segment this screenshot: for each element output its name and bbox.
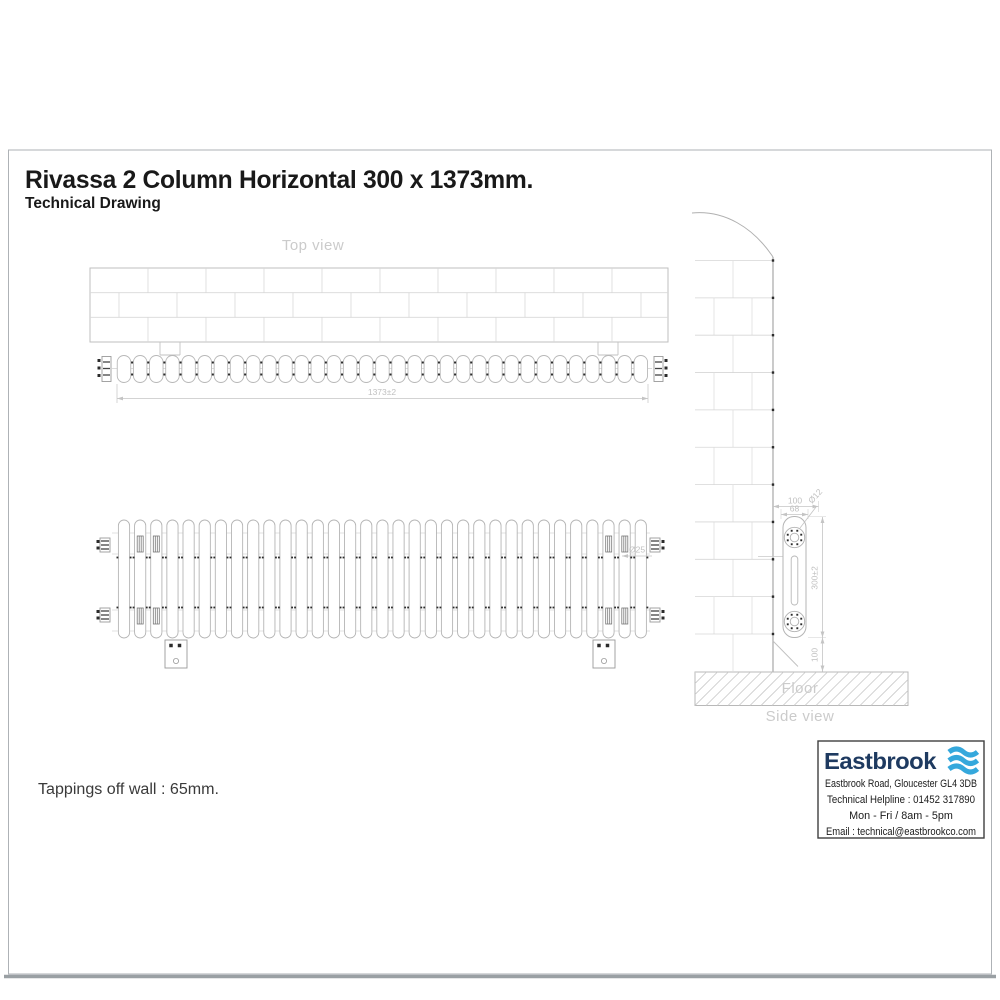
hatch-line bbox=[717, 672, 751, 706]
weld-dot bbox=[503, 374, 505, 376]
radiator-column bbox=[312, 520, 323, 638]
weld-dot bbox=[227, 557, 229, 559]
weld-dot bbox=[632, 362, 634, 364]
section-oval bbox=[569, 356, 583, 383]
weld-dot bbox=[582, 557, 584, 559]
weld-dot bbox=[162, 557, 164, 559]
weld-dot bbox=[373, 374, 375, 376]
weld-dot bbox=[324, 557, 326, 559]
weld-dot bbox=[469, 607, 471, 609]
weld-dot bbox=[163, 362, 165, 364]
weld-dot bbox=[310, 557, 312, 559]
weld-dot bbox=[504, 607, 506, 609]
weld-dot bbox=[582, 607, 584, 609]
weld-dot bbox=[566, 607, 568, 609]
weld-dot bbox=[197, 557, 199, 559]
weld-dot bbox=[488, 607, 490, 609]
flange-bolt-dot bbox=[800, 618, 802, 620]
weld-dot bbox=[180, 374, 182, 376]
weld-dot bbox=[181, 557, 183, 559]
weld-dot bbox=[228, 374, 230, 376]
weld-dot bbox=[147, 362, 149, 364]
radiator-column bbox=[587, 520, 598, 638]
weld-dot bbox=[599, 362, 601, 364]
section-oval bbox=[489, 356, 503, 383]
weld-dot bbox=[276, 374, 278, 376]
section-oval bbox=[537, 356, 551, 383]
flange-bolt-dot bbox=[800, 539, 802, 541]
weld-dot bbox=[275, 607, 277, 609]
weld-dot bbox=[340, 557, 342, 559]
radiator-column bbox=[328, 520, 339, 638]
end-dot bbox=[662, 540, 665, 543]
section-oval bbox=[553, 356, 567, 383]
valve-mark bbox=[622, 608, 628, 624]
hatch-line bbox=[695, 672, 729, 706]
weld-dot bbox=[194, 607, 196, 609]
radiator-column bbox=[571, 520, 582, 638]
weld-dot bbox=[210, 607, 212, 609]
weld-dot bbox=[133, 607, 135, 609]
section-oval bbox=[150, 356, 164, 383]
weld-dot bbox=[517, 557, 519, 559]
weld-dot bbox=[585, 607, 587, 609]
section-oval bbox=[182, 356, 196, 383]
weld-dot bbox=[294, 607, 296, 609]
weld-dot bbox=[485, 607, 487, 609]
weld-dot bbox=[550, 557, 552, 559]
section-oval bbox=[230, 356, 244, 383]
front-view-geometry bbox=[97, 520, 665, 668]
weld-dot bbox=[180, 362, 182, 364]
radiator-column bbox=[167, 520, 178, 638]
weld-dot bbox=[356, 557, 358, 559]
end-dot bbox=[97, 610, 100, 613]
radiator-column bbox=[361, 520, 372, 638]
weld-dot bbox=[262, 557, 264, 559]
dim-arrow bbox=[117, 397, 123, 401]
weld-dot bbox=[181, 607, 183, 609]
weld-dot bbox=[359, 557, 361, 559]
weld-dot bbox=[616, 374, 618, 376]
weld-dot bbox=[454, 374, 456, 376]
weld-dot bbox=[601, 607, 603, 609]
weld-dot bbox=[196, 362, 198, 364]
top-view-geometry bbox=[90, 268, 668, 403]
radiator-column bbox=[264, 520, 275, 638]
radiator-column bbox=[474, 520, 485, 638]
bracket-bolt bbox=[597, 644, 601, 648]
flange-bolt-dot bbox=[791, 543, 793, 545]
weld-dot bbox=[533, 557, 535, 559]
weld-dot bbox=[291, 607, 293, 609]
radiator-column bbox=[296, 520, 307, 638]
flange-bolt-dot bbox=[796, 530, 798, 532]
weld-dot bbox=[633, 607, 635, 609]
end-dot bbox=[662, 610, 665, 613]
weld-dot bbox=[550, 607, 552, 609]
weld-dot bbox=[341, 362, 343, 364]
wall-top-arc bbox=[692, 213, 773, 257]
weld-dot bbox=[470, 374, 472, 376]
weld-dot bbox=[275, 557, 277, 559]
weld-dot bbox=[246, 607, 248, 609]
wall-fixing-dot bbox=[772, 259, 774, 261]
end-dot bbox=[665, 374, 668, 377]
hatch-line bbox=[882, 672, 916, 706]
weld-dot bbox=[536, 607, 538, 609]
weld-dot bbox=[566, 557, 568, 559]
end-dot bbox=[97, 547, 100, 550]
weld-dot bbox=[456, 607, 458, 609]
page-title: Rivassa 2 Column Horizontal 300 x 1373mm… bbox=[25, 166, 533, 194]
weld-dot bbox=[453, 557, 455, 559]
wall-fixing-dot bbox=[772, 297, 774, 299]
end-dot bbox=[98, 367, 101, 370]
hatch-line bbox=[871, 672, 905, 706]
bracket-bolt bbox=[169, 644, 173, 648]
weld-dot bbox=[373, 362, 375, 364]
weld-dot bbox=[617, 607, 619, 609]
wall-fixing-dot bbox=[772, 558, 774, 560]
section-oval bbox=[634, 356, 648, 383]
radiator-column bbox=[183, 520, 194, 638]
tapping-flange bbox=[784, 611, 804, 631]
weld-dot bbox=[601, 557, 603, 559]
brand-helpline: Technical Helpline : 01452 317890 bbox=[827, 794, 975, 806]
hole-diameter-label: Ø12 bbox=[806, 487, 824, 506]
brand-box: Eastbrook Eastbrook Road, Gloucester GL4… bbox=[818, 741, 984, 838]
weld-dot bbox=[262, 607, 264, 609]
weld-dot bbox=[130, 557, 132, 559]
weld-dot bbox=[293, 362, 295, 364]
weld-dot bbox=[130, 607, 132, 609]
weld-dot bbox=[488, 557, 490, 559]
radiator-column bbox=[441, 520, 452, 638]
radiator-column bbox=[490, 520, 501, 638]
flange-bolt-dot bbox=[787, 618, 789, 620]
weld-dot bbox=[194, 557, 196, 559]
weld-dot bbox=[375, 607, 377, 609]
valve-mark bbox=[137, 536, 143, 552]
weld-dot bbox=[196, 374, 198, 376]
weld-dot bbox=[486, 362, 488, 364]
weld-dot bbox=[440, 607, 442, 609]
weld-dot bbox=[244, 374, 246, 376]
weld-dot bbox=[325, 362, 327, 364]
hatch-line bbox=[893, 672, 927, 706]
weld-dot bbox=[551, 362, 553, 364]
dim-arrow bbox=[773, 505, 779, 509]
hatch-line bbox=[728, 672, 762, 706]
weld-dot bbox=[278, 557, 280, 559]
dim-arrow bbox=[821, 632, 825, 638]
weld-dot bbox=[598, 557, 600, 559]
weld-dot bbox=[438, 362, 440, 364]
weld-dot bbox=[599, 374, 601, 376]
section-oval bbox=[117, 356, 131, 383]
section-oval bbox=[214, 356, 228, 383]
wall-fixing-dot bbox=[772, 595, 774, 597]
radiator-column bbox=[554, 520, 565, 638]
weld-dot bbox=[133, 557, 135, 559]
weld-dot bbox=[293, 374, 295, 376]
weld-dot bbox=[117, 607, 119, 609]
weld-dot bbox=[440, 557, 442, 559]
flange-bolt-dot bbox=[796, 627, 798, 629]
weld-dot bbox=[517, 607, 519, 609]
top-view-label: Top view bbox=[282, 237, 344, 254]
weld-dot bbox=[389, 374, 391, 376]
weld-dot bbox=[453, 607, 455, 609]
radiator-column bbox=[248, 520, 259, 638]
weld-dot bbox=[630, 557, 632, 559]
weld-dot bbox=[230, 607, 232, 609]
weld-dot bbox=[406, 374, 408, 376]
dim-arrow bbox=[781, 513, 787, 517]
weld-dot bbox=[598, 607, 600, 609]
weld-dot bbox=[372, 607, 374, 609]
section-oval bbox=[456, 356, 470, 383]
weld-dot bbox=[340, 607, 342, 609]
weld-dot bbox=[504, 557, 506, 559]
brand-email: Email : technical@eastbrookco.com bbox=[826, 826, 976, 838]
wall-fixing-dot bbox=[772, 483, 774, 485]
bracket-bolt bbox=[178, 644, 182, 648]
side-view-label: Side view bbox=[766, 708, 835, 725]
weld-dot bbox=[246, 557, 248, 559]
radiator-column bbox=[199, 520, 210, 638]
weld-dot bbox=[309, 374, 311, 376]
floor-label: Floor bbox=[782, 680, 819, 697]
weld-dot bbox=[309, 362, 311, 364]
weld-dot bbox=[165, 557, 167, 559]
weld-dot bbox=[149, 557, 151, 559]
valve-mark bbox=[153, 608, 159, 624]
dim-arrow bbox=[821, 638, 825, 644]
weld-dot bbox=[420, 607, 422, 609]
weld-dot bbox=[632, 374, 634, 376]
floor-clearance-dimension-label: 100 bbox=[810, 648, 820, 662]
weld-dot bbox=[407, 557, 409, 559]
weld-dot bbox=[585, 557, 587, 559]
flange-bolt-dot bbox=[796, 543, 798, 545]
weld-dot bbox=[210, 557, 212, 559]
technical-drawing-page: Rivassa 2 Column Horizontal 300 x 1373mm… bbox=[0, 0, 1000, 1000]
weld-dot bbox=[243, 607, 245, 609]
section-oval bbox=[133, 356, 147, 383]
section-oval bbox=[198, 356, 212, 383]
weld-dot bbox=[391, 607, 393, 609]
weld-dot bbox=[212, 362, 214, 364]
weld-dot bbox=[178, 607, 180, 609]
weld-dot bbox=[406, 362, 408, 364]
brand-hours: Mon - Fri / 8am - 5pm bbox=[849, 810, 953, 822]
weld-dot bbox=[326, 557, 328, 559]
weld-dot bbox=[553, 557, 555, 559]
dim-arrow bbox=[642, 397, 648, 401]
weld-dot bbox=[162, 607, 164, 609]
weld-dot bbox=[291, 557, 293, 559]
weld-dot bbox=[404, 557, 406, 559]
weld-dot bbox=[149, 607, 151, 609]
hatch-line bbox=[838, 672, 872, 706]
section-oval bbox=[311, 356, 325, 383]
section-oval bbox=[392, 356, 406, 383]
weld-dot bbox=[520, 607, 522, 609]
bracket-slot bbox=[791, 556, 798, 605]
weld-dot bbox=[420, 557, 422, 559]
section-oval bbox=[440, 356, 454, 383]
weld-dot bbox=[519, 362, 521, 364]
wall-fixing-dot bbox=[772, 633, 774, 635]
section-oval bbox=[360, 356, 374, 383]
brand-name: Eastbrook bbox=[824, 748, 937, 774]
weld-dot bbox=[437, 557, 439, 559]
weld-dot bbox=[341, 374, 343, 376]
flange-bolt-dot bbox=[787, 623, 789, 625]
flange-bolt-dot bbox=[787, 539, 789, 541]
weld-dot bbox=[485, 557, 487, 559]
weld-dot bbox=[357, 362, 359, 364]
radiator-column bbox=[425, 520, 436, 638]
flange-bolt-dot bbox=[800, 623, 802, 625]
length-dimension-label: 1373±2 bbox=[368, 387, 397, 397]
weld-dot bbox=[422, 362, 424, 364]
radiator-column bbox=[377, 520, 388, 638]
hatch-line bbox=[827, 672, 861, 706]
valve-mark bbox=[622, 536, 628, 552]
weld-dot bbox=[146, 607, 148, 609]
section-oval bbox=[602, 356, 616, 383]
weld-dot bbox=[422, 374, 424, 376]
weld-dot bbox=[147, 374, 149, 376]
page-subtitle: Technical Drawing bbox=[25, 195, 161, 212]
weld-dot bbox=[567, 362, 569, 364]
weld-dot bbox=[260, 362, 262, 364]
height-dimension-label: 300±2 bbox=[810, 566, 820, 590]
weld-dot bbox=[551, 374, 553, 376]
flange-bolt-dot bbox=[796, 614, 798, 616]
weld-dot bbox=[567, 374, 569, 376]
radiator-column bbox=[393, 520, 404, 638]
weld-dot bbox=[260, 374, 262, 376]
valve-mark bbox=[137, 608, 143, 624]
end-dot bbox=[97, 617, 100, 620]
side-view-geometry bbox=[662, 213, 938, 706]
weld-dot bbox=[423, 557, 425, 559]
end-dot bbox=[98, 374, 101, 377]
end-dot bbox=[662, 617, 665, 620]
weld-dot bbox=[535, 362, 537, 364]
weld-dot bbox=[614, 607, 616, 609]
hatch-line bbox=[849, 672, 883, 706]
end-dot bbox=[665, 367, 668, 370]
radiator-column bbox=[280, 520, 291, 638]
valve-mark bbox=[606, 536, 612, 552]
weld-dot bbox=[213, 607, 215, 609]
weld-dot bbox=[583, 362, 585, 364]
weld-dot bbox=[372, 557, 374, 559]
weld-dot bbox=[324, 607, 326, 609]
weld-dot bbox=[259, 557, 261, 559]
radiator-column bbox=[409, 520, 420, 638]
hatch-line bbox=[739, 672, 773, 706]
section-oval bbox=[618, 356, 632, 383]
weld-dot bbox=[307, 557, 309, 559]
weld-dot bbox=[343, 557, 345, 559]
wall-fixing-dot bbox=[772, 409, 774, 411]
weld-dot bbox=[178, 557, 180, 559]
weld-dot bbox=[647, 557, 649, 559]
hatch-line bbox=[904, 672, 938, 706]
weld-dot bbox=[307, 607, 309, 609]
hatch-line bbox=[750, 672, 784, 706]
radiator-column bbox=[345, 520, 356, 638]
section-oval bbox=[246, 356, 260, 383]
section-oval bbox=[279, 356, 293, 383]
weld-dot bbox=[326, 607, 328, 609]
radiator-column bbox=[215, 520, 226, 638]
hatch-line bbox=[662, 672, 696, 706]
weld-dot bbox=[614, 557, 616, 559]
tube-diameter-label: Ø25 bbox=[629, 545, 645, 555]
tappings-note: Tappings off wall : 65mm. bbox=[38, 781, 219, 798]
radiator-column bbox=[635, 520, 646, 638]
weld-dot bbox=[343, 607, 345, 609]
weld-dot bbox=[472, 607, 474, 609]
bracket-bolt bbox=[606, 644, 610, 648]
weld-dot bbox=[388, 607, 390, 609]
weld-dot bbox=[536, 557, 538, 559]
flange-bolt-dot bbox=[791, 627, 793, 629]
weld-dot bbox=[228, 362, 230, 364]
weld-dot bbox=[259, 607, 261, 609]
weld-dot bbox=[569, 557, 571, 559]
radiator-column bbox=[506, 520, 517, 638]
section-oval bbox=[343, 356, 357, 383]
weld-dot bbox=[359, 607, 361, 609]
weld-dot bbox=[212, 374, 214, 376]
section-oval bbox=[408, 356, 422, 383]
hatch-line bbox=[706, 672, 740, 706]
end-dot bbox=[97, 540, 100, 543]
valve-mark bbox=[606, 608, 612, 624]
weld-dot bbox=[131, 362, 133, 364]
wall-fixing-dot bbox=[772, 371, 774, 373]
weld-dot bbox=[230, 557, 232, 559]
weld-dot bbox=[227, 607, 229, 609]
weld-dot bbox=[244, 362, 246, 364]
radiator-column bbox=[458, 520, 469, 638]
weld-dot bbox=[391, 557, 393, 559]
dim-arrow bbox=[821, 517, 825, 523]
weld-dot bbox=[437, 607, 439, 609]
weld-dot bbox=[503, 362, 505, 364]
section-oval bbox=[521, 356, 535, 383]
weld-dot bbox=[388, 557, 390, 559]
hatch-line bbox=[816, 672, 850, 706]
section-oval bbox=[295, 356, 309, 383]
weld-dot bbox=[472, 557, 474, 559]
weld-dot bbox=[197, 607, 199, 609]
hatch-line bbox=[673, 672, 707, 706]
end-dot bbox=[665, 359, 668, 362]
weld-dot bbox=[583, 374, 585, 376]
wall-fixing-dot bbox=[772, 446, 774, 448]
section-oval bbox=[263, 356, 277, 383]
weld-dot bbox=[469, 557, 471, 559]
